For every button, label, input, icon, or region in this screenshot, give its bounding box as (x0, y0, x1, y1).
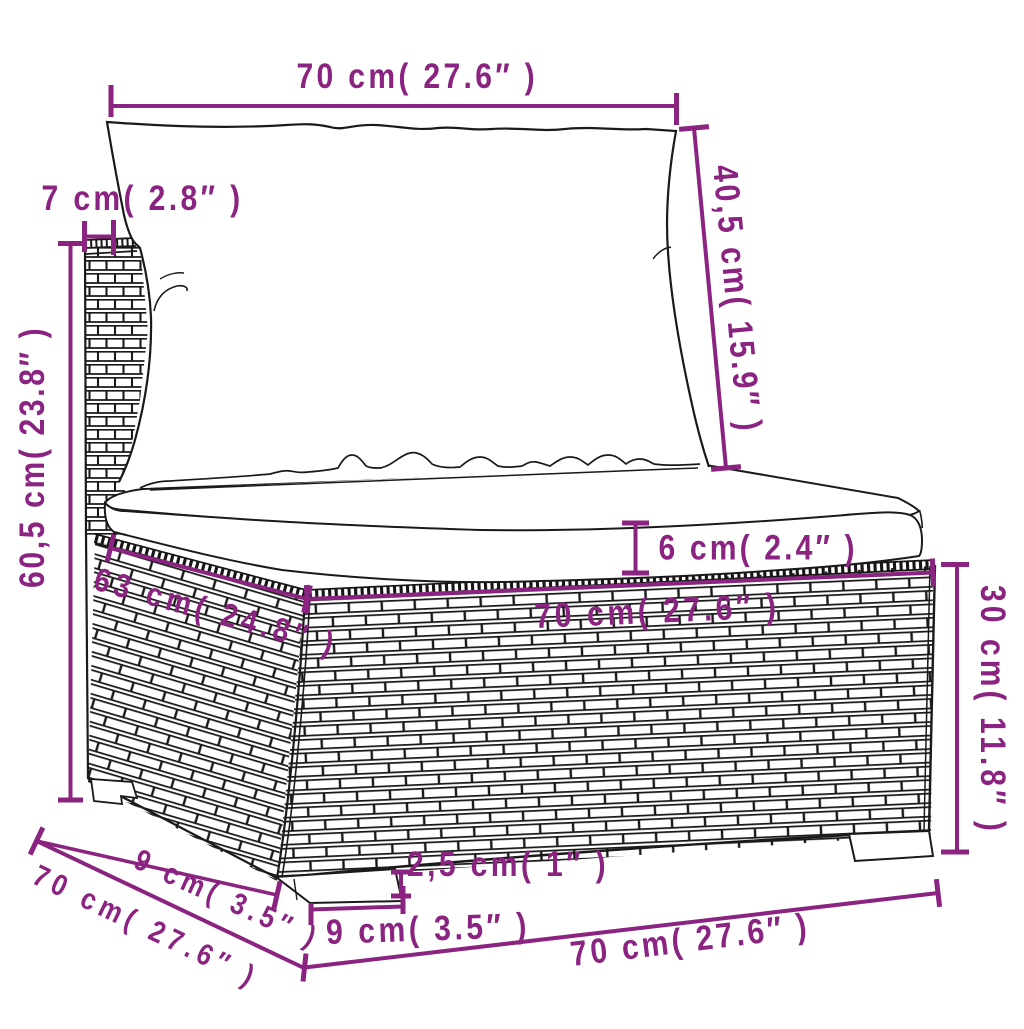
svg-text:70 cm( 27.6″ ): 70 cm( 27.6″ ) (297, 56, 535, 96)
svg-text:30 cm( 11.8″ ): 30 cm( 11.8″ ) (973, 585, 1013, 831)
